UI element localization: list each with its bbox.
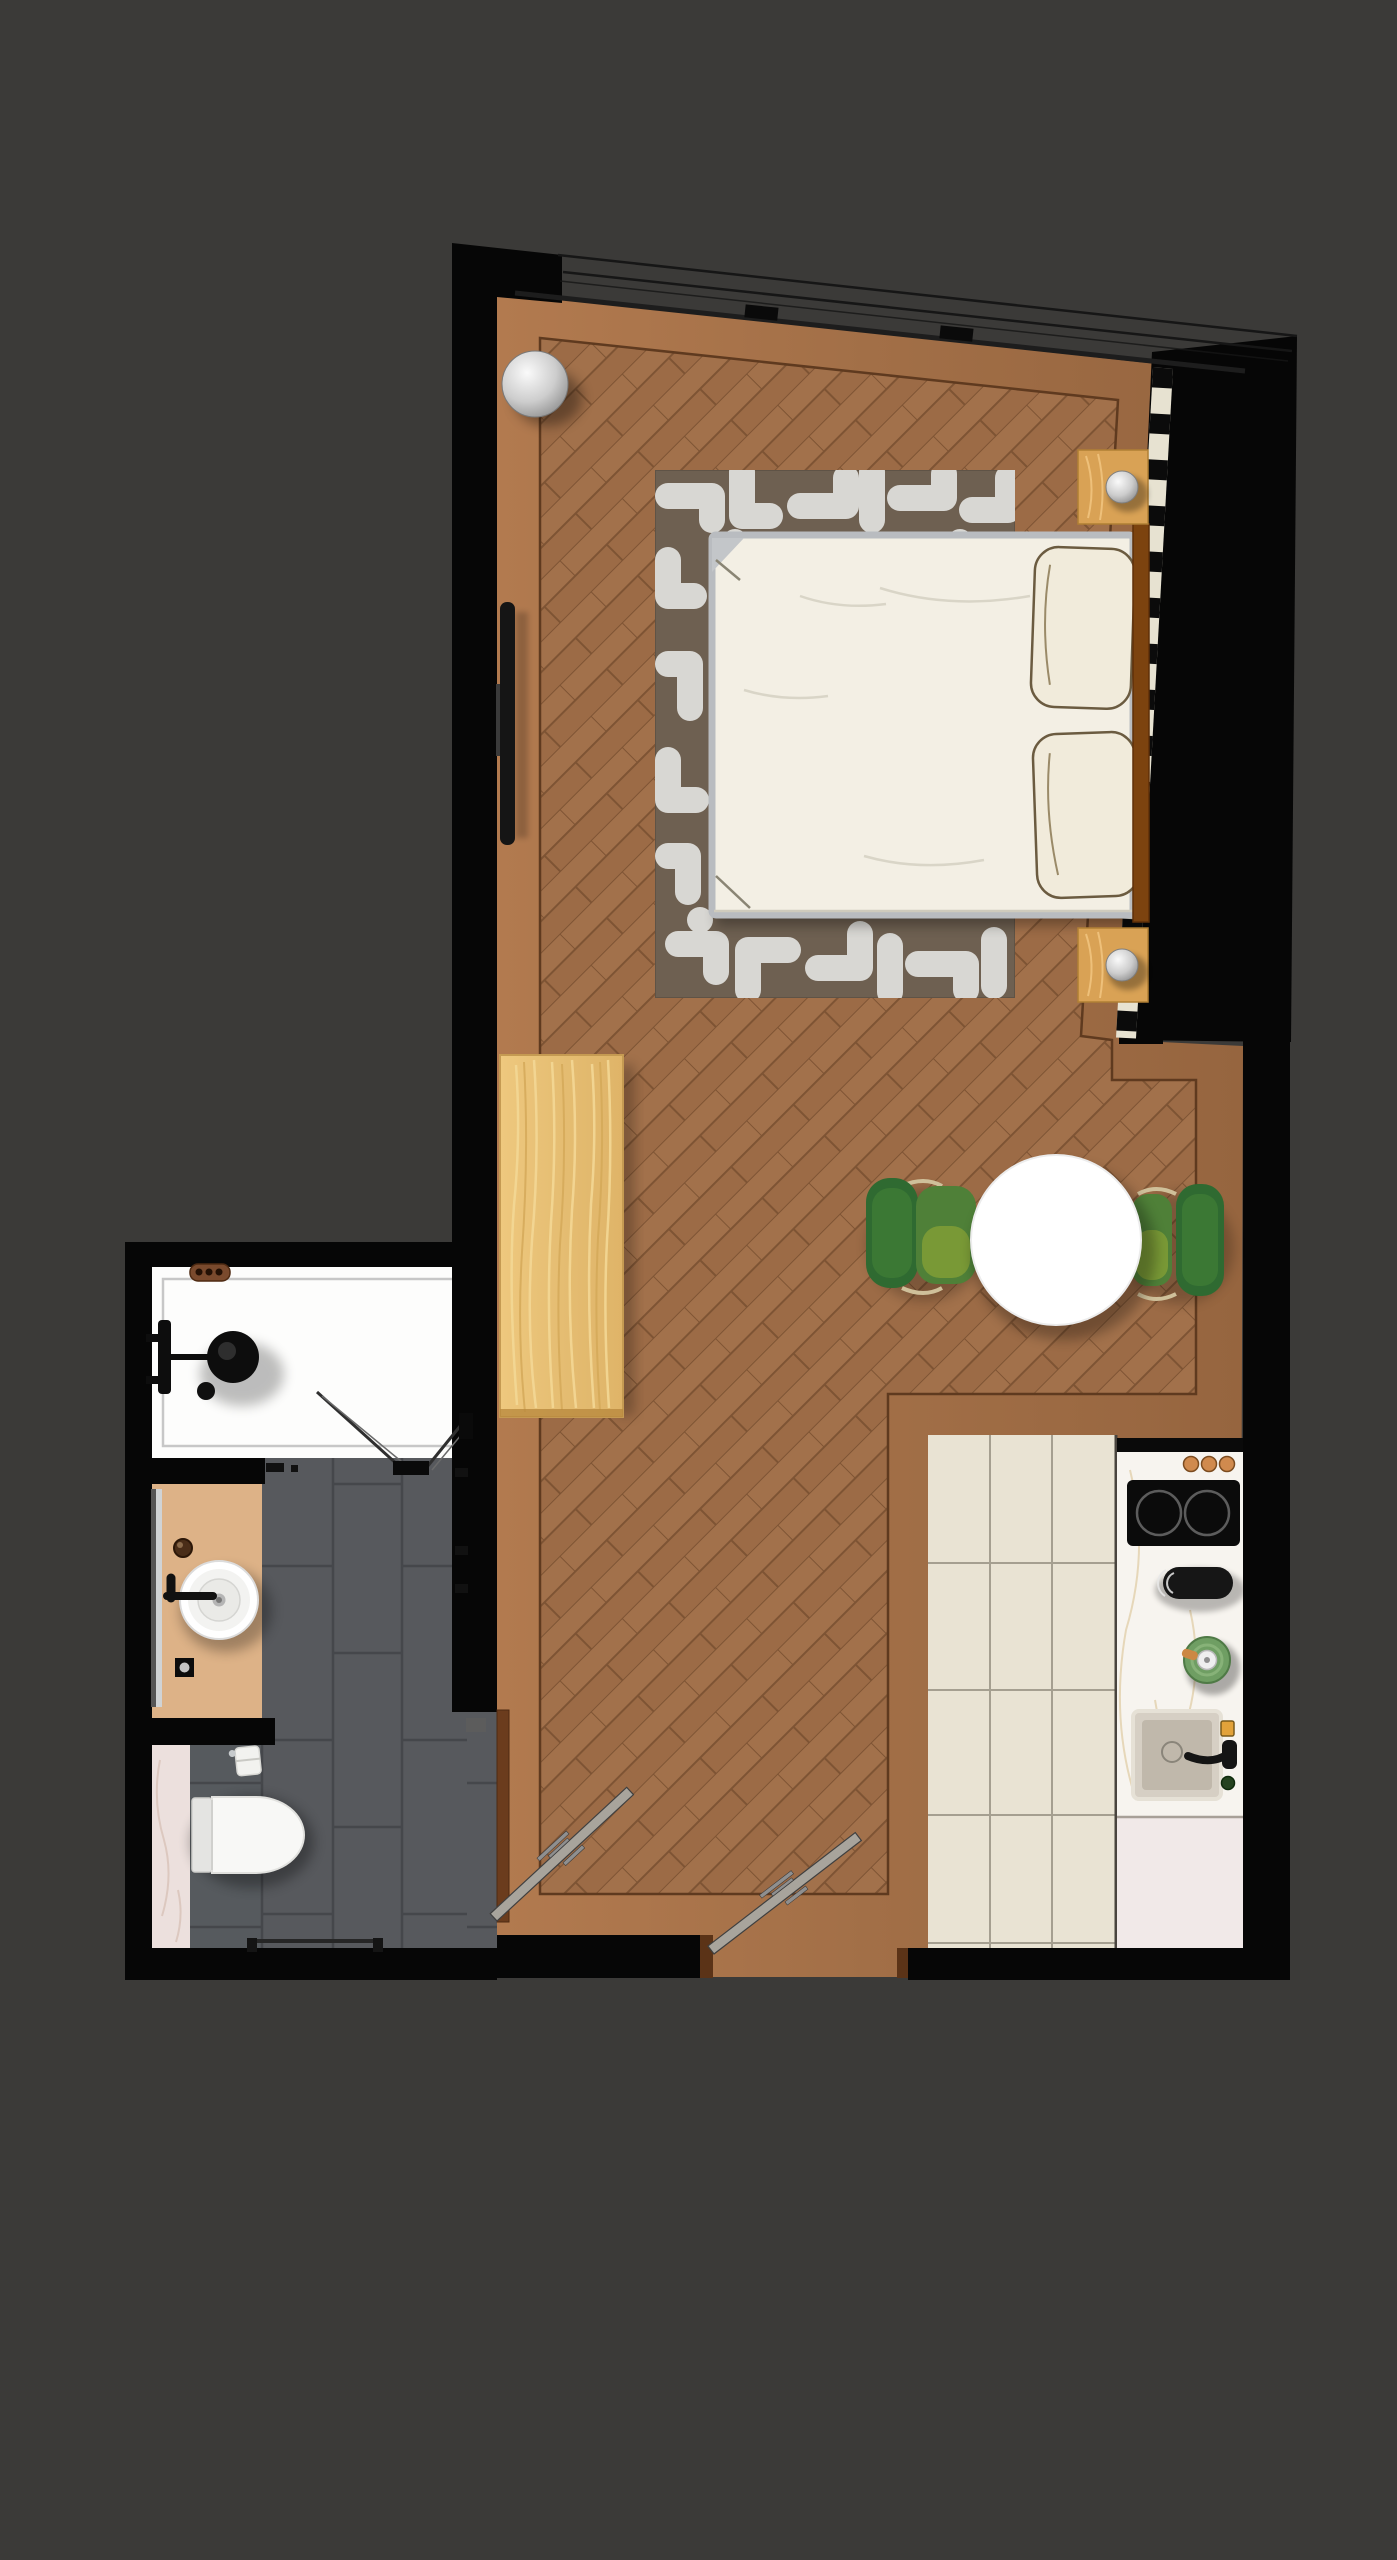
wardrobe-edge [500,1409,623,1417]
shelf-dot [196,1269,203,1276]
headboard [1133,524,1149,922]
kitchen-tile-floor [928,1435,1115,1953]
bathroom-door-frame [497,1710,509,1922]
double-bed [712,524,1149,926]
kitchen-area [928,1435,1245,1953]
shower-pipe-stub [146,1334,158,1342]
knob-highlight [177,1542,183,1548]
bathroom-wall-divider1 [125,1458,265,1484]
cooktop [1127,1480,1240,1546]
bathroom-wall-bottom [125,1948,497,1980]
chair-backrest-inner [872,1188,912,1278]
sink-drain-dot [216,1597,222,1603]
wardrobe [500,1055,634,1417]
pillow [1032,731,1140,898]
sphere-lamp-icon [1106,949,1138,981]
hook-icon [455,1546,468,1555]
bathroom-wall-right [463,1242,497,1704]
chair-seat-cushion [922,1226,970,1278]
toilet-bowl [212,1797,304,1873]
sphere-icon [502,351,568,417]
sphere-lamp-icon [1106,471,1138,503]
counter-back-gap [1117,1438,1243,1452]
wall-end-cap [466,1718,486,1732]
dining-chair-left [866,1178,983,1301]
south-wall-main [497,1935,700,1978]
hook-icon [455,1468,468,1477]
square-sink [1133,1711,1221,1799]
knob-icon [1202,1457,1217,1472]
pink-counter-slab [1117,1817,1243,1950]
bath-tile-floor [262,1458,467,1952]
tv-shadow [516,612,528,838]
door-track [291,1465,298,1472]
pink-marble-strip [148,1745,190,1953]
pillow [1030,546,1136,709]
shower-shelf [190,1264,230,1281]
toilet [190,1796,314,1888]
soap-dish-center [180,1663,190,1673]
toilet-tank [192,1798,212,1872]
nightstand-top [1078,450,1148,524]
plant-knob [1204,1657,1210,1663]
south-wall-kitchen [908,1948,1290,1980]
door-hinge-block [393,1461,429,1475]
entry-jamb-right [897,1948,908,1978]
knob-icon [1220,1457,1235,1472]
wall-tv [496,602,528,845]
table-top [971,1155,1141,1325]
shower-pipe-stub [146,1376,158,1384]
shower-bar [158,1320,171,1394]
east-wall-lower [1243,1040,1290,1980]
tv-body [500,602,515,845]
rail-bracket [247,1938,257,1952]
shelf-dot [216,1269,223,1276]
shower-floor [150,1266,467,1459]
door-hinge-block [459,1413,473,1439]
shower-head-hub [218,1342,236,1360]
bathroom-wall-divider2 [125,1718,275,1745]
counter-knobs [1184,1457,1235,1472]
nightstand-bottom [1078,928,1148,1002]
floor-plan-canvas [0,0,1397,2560]
bathroom-wall-left [125,1242,152,1980]
entry-jamb-left [700,1935,713,1978]
mirror [156,1489,162,1707]
soap-bar [1221,1721,1234,1736]
sink-basin [1142,1720,1212,1790]
tap-body [1163,1567,1233,1599]
hook-icon [455,1584,468,1593]
shelf-dot [206,1269,213,1276]
door-track [266,1463,284,1472]
chair-backrest-inner [1182,1194,1218,1286]
mirror-back [151,1489,156,1707]
drain-knob-icon [174,1539,192,1557]
bathroom-wall-top [125,1242,488,1267]
shower-knob [197,1382,215,1400]
rail-bracket [373,1938,383,1952]
green-knob-icon [1222,1777,1235,1790]
knob-icon [1184,1457,1199,1472]
